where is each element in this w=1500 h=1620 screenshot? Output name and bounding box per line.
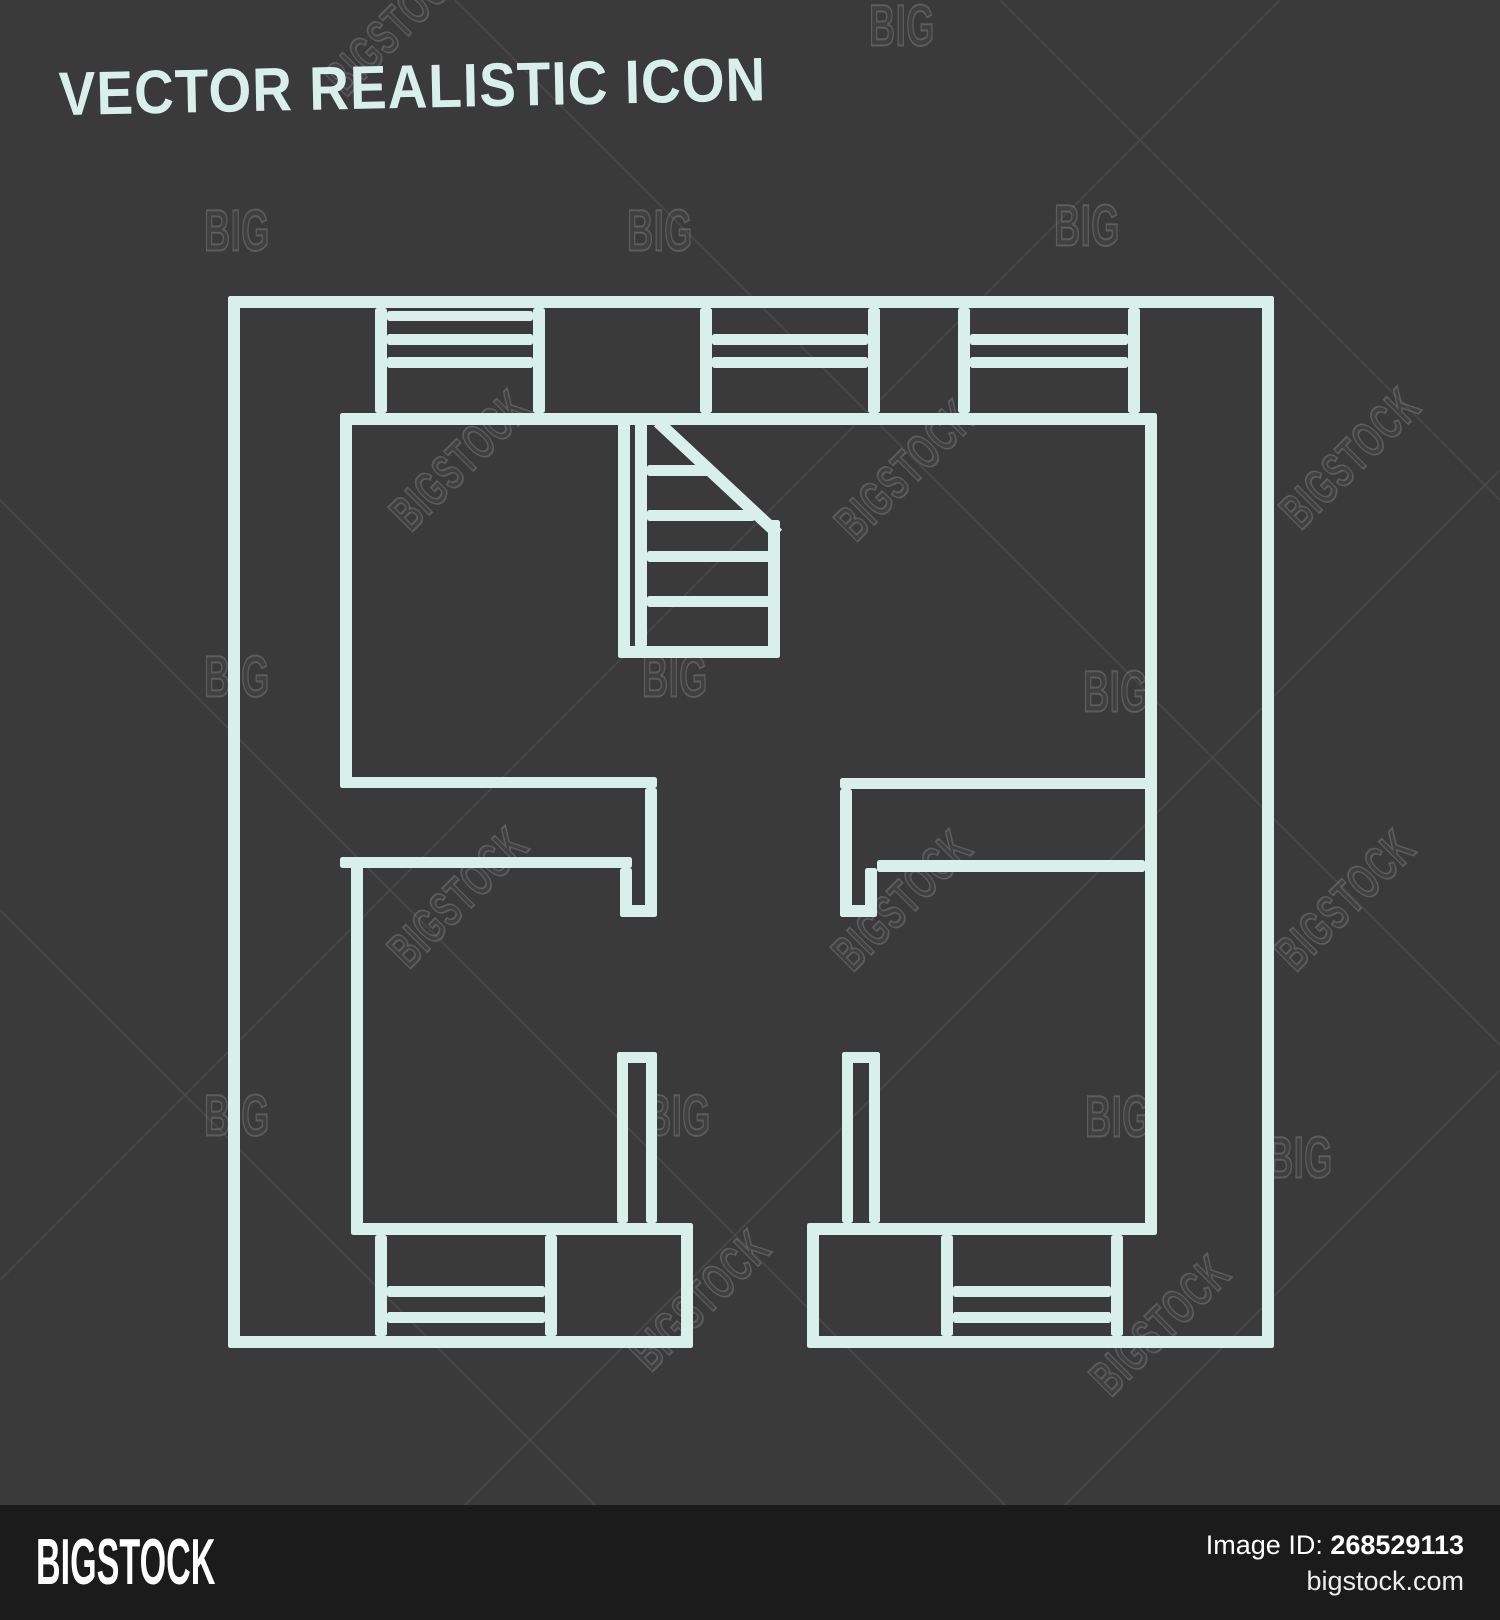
plan-wall-segment [865,868,877,917]
image-id-row: Image ID: 268529113 [1206,1527,1464,1563]
plan-wall-segment [617,1052,628,1223]
plan-wall-segment [618,423,630,658]
plan-wall-segment [228,1336,693,1348]
plan-wall-segment [877,860,1145,872]
plan-wall-segment [635,423,647,647]
plan-wall-segment [840,789,852,917]
plan-wall-segment [712,357,868,368]
plan-wall-segment [869,1052,880,1223]
plan-wall-segment [387,311,533,321]
image-id-label: Image ID: [1206,1530,1323,1560]
plan-wall-segment [1128,308,1140,413]
page-title: VECTOR REALISTIC ICON [58,43,767,129]
plan-wall-segment [1145,413,1157,1235]
plan-wall-segment [618,646,780,658]
plan-wall-segment [340,777,657,788]
plan-wall-segment [533,308,545,413]
plan-wall-segment [807,1223,1157,1235]
plan-wall-segment [387,357,533,368]
plan-wall-segment [970,334,1128,345]
plan-wall-segment [1262,296,1274,1348]
plan-wall-segment [807,1336,1274,1348]
plan-wall-segment [351,1223,693,1235]
plan-wall-segment [958,308,970,413]
plan-wall-segment [647,551,780,562]
plan-wall-segment [340,413,352,788]
footer-meta: Image ID: 268529113 bigstock.com [1206,1527,1464,1599]
image-id-value: 268529113 [1330,1530,1464,1560]
watermarked-image-area: BIGBIGBIGBIGBIGBIGBIGBIGBIGBIGBIGBIGSTOC… [0,0,1500,1505]
house-plan-icon [0,0,1500,1505]
plan-wall-segment [807,1223,819,1348]
plan-wall-segment [375,308,387,413]
plan-wall-segment [351,857,363,1235]
plan-wall-segment [340,857,632,868]
plan-wall-segment [647,510,755,521]
plan-wall-segment [953,1312,1111,1323]
plan-wall-segment [387,1286,545,1297]
plan-wall-segment [228,296,240,1348]
site-link[interactable]: bigstock.com [1206,1563,1464,1599]
plan-wall-segment [842,1052,853,1223]
plan-wall-segment [646,1052,657,1223]
plan-wall-segment [620,868,632,917]
plan-wall-segment [768,520,780,658]
plan-wall-segment [387,334,533,345]
footer-bar: BIGSTOCK Image ID: 268529113 bigstock.co… [0,1505,1500,1620]
plan-wall-segment [700,308,712,413]
plan-wall-segment [840,778,1157,789]
plan-wall-segment [941,1235,953,1336]
plan-wall-segment [712,334,868,345]
plan-wall-segment [645,788,657,917]
plan-wall-segment [681,1223,693,1348]
plan-wall-segment [1111,1235,1123,1336]
plan-wall-segment [545,1235,557,1336]
plan-wall-segment [970,357,1128,368]
plan-wall-segment [340,413,1157,425]
plan-wall-segment [953,1286,1111,1297]
plan-wall-segment [647,596,780,607]
stock-preview-page: BIGBIGBIGBIGBIGBIGBIGBIGBIGBIGBIGBIGSTOC… [0,0,1500,1620]
plan-wall-segment [375,1235,387,1336]
plan-wall-segment [387,1312,545,1323]
bigstock-logo: BIGSTOCK [36,1525,215,1600]
plan-wall-segment [228,296,1274,308]
plan-wall-segment [868,308,880,413]
